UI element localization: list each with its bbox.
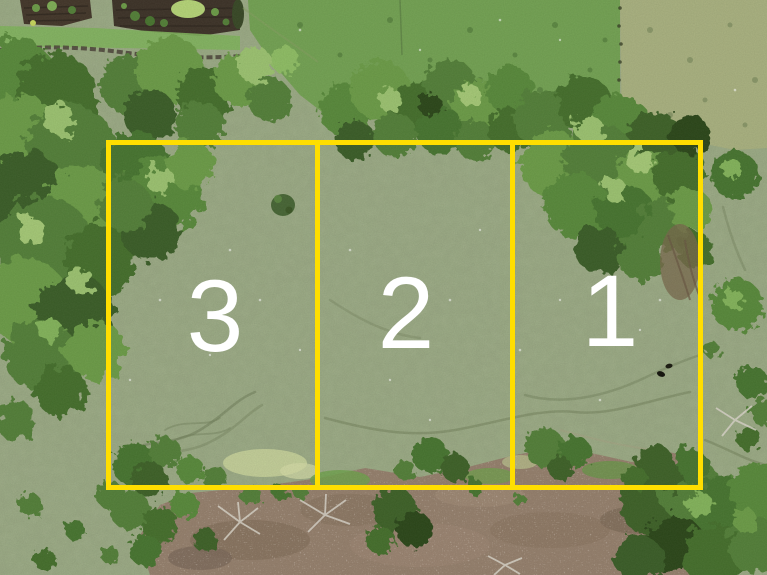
lot-2-label: 2: [378, 262, 435, 364]
lot-3-label: 3: [187, 265, 244, 367]
plot-divider-lot2-lot1: [510, 140, 515, 490]
lot-1-label: 1: [582, 260, 639, 362]
aerial-photo-scene: 3 2 1: [0, 0, 767, 575]
plot-divider-lot3-lot2: [315, 140, 320, 490]
lot-overlay: 3 2 1: [0, 0, 767, 575]
